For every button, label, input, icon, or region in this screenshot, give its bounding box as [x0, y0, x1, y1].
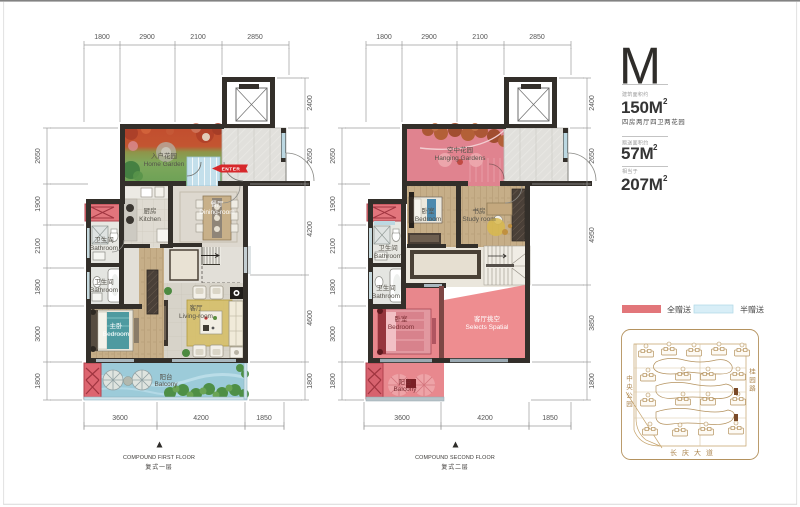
svg-text:4200: 4200	[307, 221, 314, 237]
svg-text:空中花园: 空中花园	[447, 145, 473, 154]
svg-text:2: 2	[663, 174, 668, 183]
svg-text:Bedroom: Bedroom	[388, 324, 414, 331]
svg-text:2650: 2650	[35, 148, 42, 164]
svg-text:卧室: 卧室	[395, 314, 409, 323]
svg-text:Kitchen: Kitchen	[139, 216, 161, 223]
svg-text:Selects Spatial: Selects Spatial	[466, 324, 510, 331]
svg-text:2650: 2650	[330, 148, 337, 164]
svg-text:1800: 1800	[330, 279, 337, 295]
svg-text:2650: 2650	[307, 148, 314, 164]
svg-text:阳台: 阳台	[160, 372, 173, 381]
svg-text:1800: 1800	[94, 34, 110, 41]
svg-text:建筑面积约: 建筑面积约	[622, 91, 649, 98]
svg-text:1850: 1850	[542, 415, 558, 422]
svg-text:2850: 2850	[247, 34, 263, 41]
svg-text:1850: 1850	[256, 415, 272, 422]
svg-text:ENTER: ENTER	[222, 166, 241, 172]
svg-text:2400: 2400	[307, 95, 314, 111]
svg-text:Balcony: Balcony	[393, 386, 417, 393]
svg-text:2: 2	[653, 143, 658, 152]
svg-text:客厅挑空: 客厅挑空	[474, 314, 501, 323]
svg-text:入户花园: 入户花园	[151, 151, 177, 160]
svg-text:厨房: 厨房	[144, 206, 157, 215]
svg-text:4200: 4200	[477, 415, 493, 422]
svg-text:卫生间: 卫生间	[376, 283, 396, 292]
svg-text:Bedroom: Bedroom	[415, 216, 441, 223]
svg-text:Balcony: Balcony	[154, 381, 178, 388]
svg-text:150M: 150M	[621, 98, 663, 117]
svg-text:1800: 1800	[307, 373, 314, 389]
svg-text:阳台: 阳台	[399, 377, 412, 386]
svg-text:卫生间: 卫生间	[378, 243, 398, 252]
svg-text:卫生间: 卫生间	[94, 277, 114, 286]
svg-text:2900: 2900	[139, 34, 155, 41]
svg-text:主卧: 主卧	[110, 321, 124, 330]
svg-text:2400: 2400	[589, 95, 596, 111]
svg-text:书房: 书房	[473, 206, 486, 215]
svg-text:卧室: 卧室	[422, 206, 436, 215]
svg-text:复式一层: 复式一层	[145, 463, 172, 471]
svg-text:Bathroom: Bathroom	[372, 293, 400, 300]
svg-text:1800: 1800	[376, 34, 392, 41]
svg-text:2100: 2100	[472, 34, 488, 41]
svg-text:COMPOUND FIRST FLOOR: COMPOUND FIRST FLOOR	[123, 455, 195, 461]
svg-text:COMPOUND SECOND FLOOR: COMPOUND SECOND FLOOR	[415, 455, 495, 461]
svg-text:2650: 2650	[589, 148, 596, 164]
svg-text:1800: 1800	[35, 373, 42, 389]
svg-text:1900: 1900	[330, 196, 337, 212]
svg-text:2850: 2850	[529, 34, 545, 41]
svg-text:4950: 4950	[589, 227, 596, 243]
svg-text:M: M	[619, 38, 661, 96]
svg-text:2100: 2100	[190, 34, 206, 41]
svg-text:1900: 1900	[35, 196, 42, 212]
svg-text:3000: 3000	[330, 326, 337, 342]
svg-text:Hanging Gardens: Hanging Gardens	[435, 155, 487, 162]
svg-text:4600: 4600	[307, 310, 314, 326]
svg-text:207M: 207M	[621, 175, 663, 194]
svg-text:相当于: 相当于	[622, 168, 638, 175]
svg-text:Bedroom: Bedroom	[103, 331, 129, 338]
svg-text:4200: 4200	[193, 415, 209, 422]
svg-text:Living-room: Living-room	[179, 313, 213, 320]
svg-text:长庆大道: 长庆大道	[670, 448, 718, 457]
svg-text:Bathroom: Bathroom	[90, 245, 118, 252]
svg-text:2: 2	[663, 97, 668, 106]
svg-text:2100: 2100	[35, 238, 42, 254]
svg-text:客厅: 客厅	[190, 303, 204, 312]
svg-text:3600: 3600	[394, 415, 410, 422]
svg-text:四房两厅四卫两花园: 四房两厅四卫两花园	[622, 117, 685, 126]
svg-text:57M: 57M	[621, 144, 654, 163]
svg-text:Home Garden: Home Garden	[144, 161, 185, 168]
svg-text:Dining-room: Dining-room	[199, 209, 234, 216]
svg-text:半赠送: 半赠送	[740, 305, 764, 315]
svg-text:卫生间: 卫生间	[94, 235, 114, 244]
svg-text:1800: 1800	[35, 279, 42, 295]
svg-text:3850: 3850	[589, 315, 596, 331]
svg-text:3000: 3000	[35, 326, 42, 342]
svg-text:Study room: Study room	[462, 216, 495, 223]
svg-text:3600: 3600	[112, 415, 128, 422]
svg-text:2100: 2100	[330, 238, 337, 254]
svg-text:Bathroom: Bathroom	[90, 287, 118, 294]
svg-text:1800: 1800	[330, 373, 337, 389]
svg-text:全赠送: 全赠送	[667, 305, 691, 315]
svg-text:餐厅: 餐厅	[211, 199, 225, 208]
svg-text:复式二层: 复式二层	[441, 463, 468, 471]
svg-text:1800: 1800	[589, 373, 596, 389]
svg-text:2900: 2900	[421, 34, 437, 41]
svg-text:Bathroom: Bathroom	[374, 253, 402, 260]
